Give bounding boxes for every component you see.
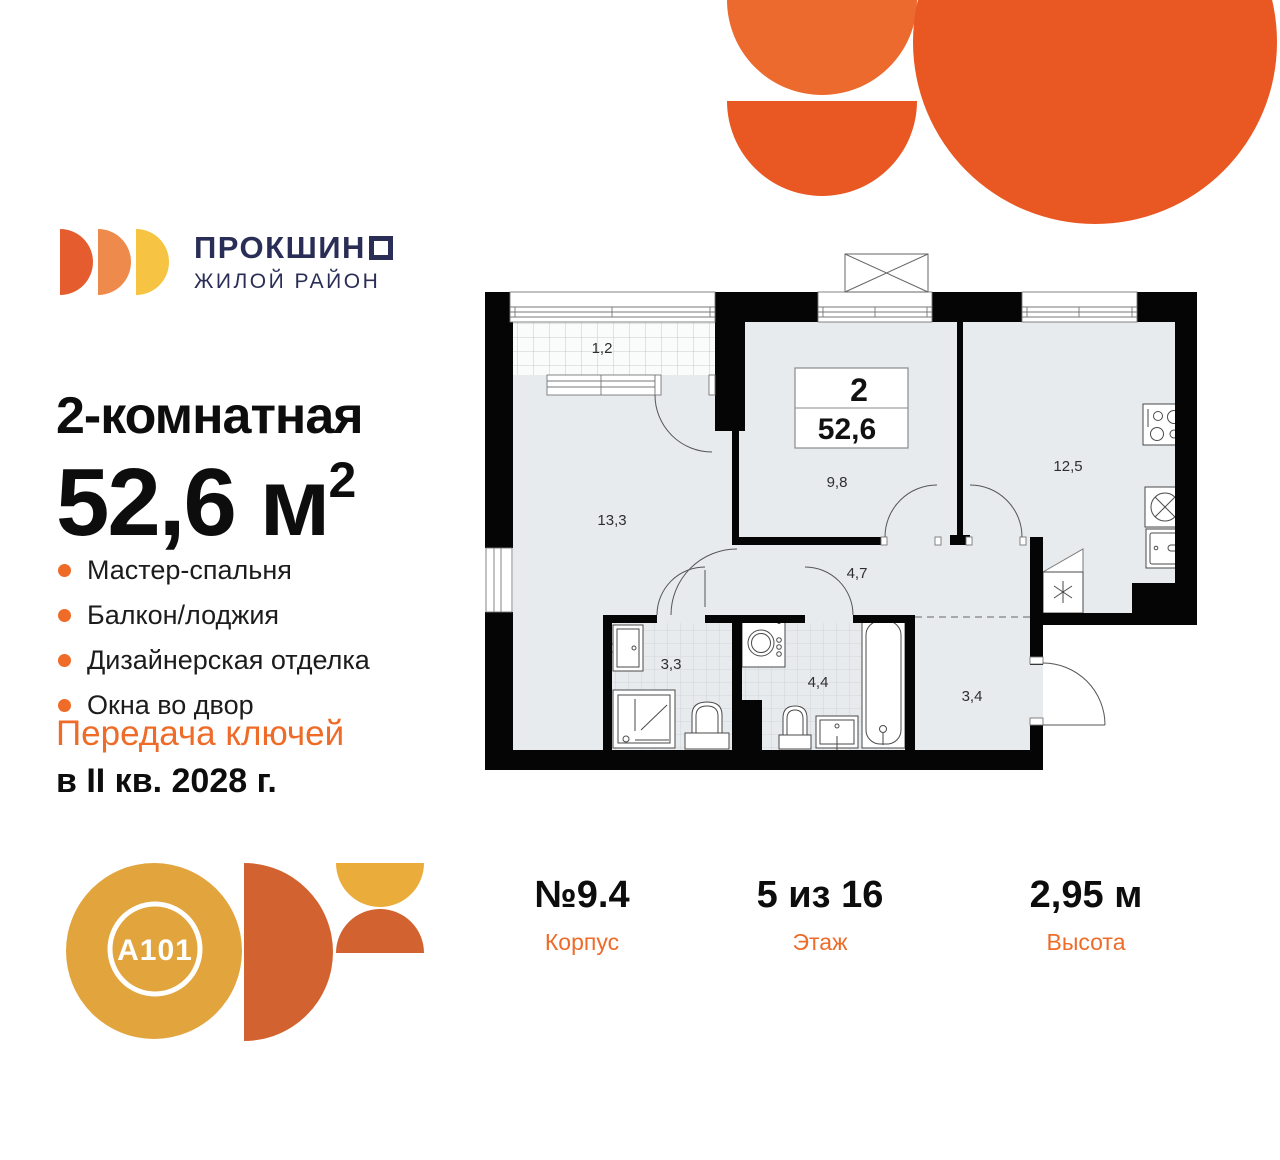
stat-building-label: Корпус <box>457 929 707 956</box>
door-jamb <box>1030 718 1043 725</box>
stat-building-value: №9.4 <box>457 874 707 917</box>
developer-logo: A101 <box>56 858 431 1053</box>
room-label-hallway: 3,4 <box>962 688 983 705</box>
washing-machine-icon <box>742 617 785 667</box>
toilet2-icon <box>779 706 811 749</box>
handover-line2: в II кв. 2028 г. <box>56 762 277 801</box>
deco-semicircle-top-icon <box>727 0 917 95</box>
room-label-bathroom: 3,3 <box>661 656 682 673</box>
brand-tagline: ЖИЛОЙ РАЙОН <box>194 270 393 294</box>
badge-area: 52,6 <box>818 413 876 446</box>
brand-logo: ПРОКШИН ЖИЛОЙ РАЙОН <box>58 228 393 296</box>
bath-sink2-icon <box>816 716 858 751</box>
stat-height: 2,95 м Высота <box>961 874 1211 956</box>
door-jamb <box>1020 537 1026 545</box>
bullet-dot-icon <box>58 654 71 667</box>
a101-rust-half-icon <box>336 909 424 953</box>
handover-line1: Передача ключей <box>56 714 344 754</box>
bedroom-window-icon <box>818 292 932 322</box>
shower-icon <box>613 690 675 748</box>
stat-floor-label: Этаж <box>695 929 945 956</box>
room-label-corridor: 4,7 <box>847 565 868 582</box>
area-title: 52,6 м2 <box>56 430 356 553</box>
side-window-icon <box>486 548 512 612</box>
room-label-master-bedroom: 13,3 <box>597 512 626 529</box>
stat-floor: 5 из 16 Этаж <box>695 874 945 956</box>
door-jamb <box>966 537 972 545</box>
feature-item: Мастер-спальня <box>58 548 370 593</box>
balcony-floor <box>513 322 715 375</box>
balcony-window-icon <box>510 292 715 322</box>
brand-marks-icon <box>58 228 170 296</box>
stat-height-label: Высота <box>961 929 1211 956</box>
vent-shaft-icon <box>845 254 928 292</box>
deco-shapes <box>700 0 1280 250</box>
apartment-badge: 2 52,6 <box>795 368 908 448</box>
door-jamb <box>1030 657 1043 664</box>
door-jamb <box>935 537 941 545</box>
bathtub-icon <box>862 617 905 748</box>
bullet-dot-icon <box>58 564 71 577</box>
a101-yellow-half-icon <box>336 863 424 907</box>
kitchen-window-icon <box>1022 292 1137 322</box>
bullet-dot-icon <box>58 699 71 712</box>
badge-rooms: 2 <box>850 372 868 408</box>
brand-name: ПРОКШИН <box>194 230 393 266</box>
bullet-dot-icon <box>58 609 71 622</box>
deco-semicircle-bottom-icon <box>727 101 917 196</box>
room-label-bathroom2: 4,4 <box>808 674 829 691</box>
floor-plan: 1,2 13,3 9,8 12,5 4,7 3,3 4,4 3,4 2 52,6 <box>485 253 1197 773</box>
stat-floor-value: 5 из 16 <box>695 874 945 917</box>
room-label-bedroom: 9,8 <box>827 474 848 491</box>
feature-item: Дизайнерская отделка <box>58 638 370 683</box>
a101-logo-text: A101 <box>117 934 193 967</box>
deco-big-circle-icon <box>913 0 1277 224</box>
room-label-balcony: 1,2 <box>592 340 613 357</box>
features-list: Мастер-спальня Балкон/лоджия Дизайнерска… <box>58 548 370 728</box>
bath-sink-icon <box>608 625 643 671</box>
room-label-kitchen: 12,5 <box>1053 458 1082 475</box>
feature-item: Балкон/лоджия <box>58 593 370 638</box>
stat-building: №9.4 Корпус <box>457 874 707 956</box>
door-jamb <box>881 537 887 545</box>
stat-height-value: 2,95 м <box>961 874 1211 917</box>
a101-halfdisc-icon <box>244 863 333 1041</box>
square-o-icon <box>369 236 393 260</box>
